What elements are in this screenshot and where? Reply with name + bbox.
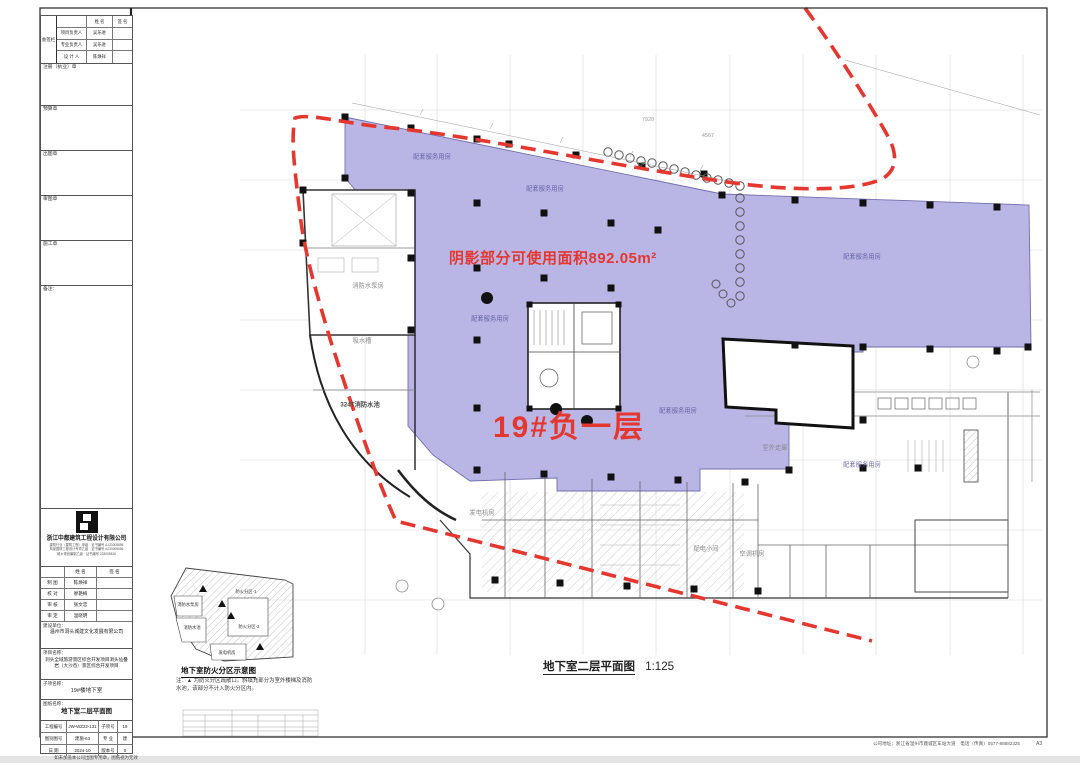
subitem-section: 子项名称： 19#楼地下室 [41,680,132,700]
staff-table: 姓 名 签 名 制 图 陈焕祥 校 对 廖艳梅 审 核 张文忠 审 定 温晓明 [41,567,132,622]
keyplan-caption: 地下室防火分区示意图 [181,665,256,678]
sign-column: 会签栏 姓 名 签 名 项目负责人 吴乐进 专业负责人 吴乐进 设 计 人 陈焕… [41,16,132,64]
company-section: 浙江中都建筑工程设计有限公司 建筑行业（建筑工程）甲级 证书编号 A133005… [41,509,132,567]
client-section: 建设单位： 温州市洞头城建文化发展有限公司 [41,622,132,649]
plan-drawing [0,0,1080,763]
drawing-label: 配套服务用房 [659,406,697,415]
area-table [183,710,318,736]
client-name: 温州市洞头城建文化发展有限公司 [43,630,130,636]
table-cell [57,16,87,27]
table-header: 姓 名 [87,16,113,27]
drawing-label: 4567 [702,133,714,139]
bottom-edge-band [0,756,1080,763]
keyplan-note: 注：▲ 为防火分区疏散口。斜填充部分为室外楼梯及消防水池，该部分不计入防火分区内… [176,678,316,694]
plan-caption-title: 地下室二层平面图 [543,661,635,675]
role-label: 项目负责人 [57,28,87,39]
person-name: 吴乐进 [87,40,113,51]
drawing-label: 发电机房 [469,508,494,517]
issue-seal-box: 出图章 [41,151,132,196]
drawing-label: 配套服务用房 [843,460,881,469]
drawing-label: 配电小间 [693,544,718,553]
drawing-label: 配套服务用房 [843,252,881,261]
drawing-label: 发电机房 [218,650,235,656]
signature-cell [113,40,132,51]
subitem-name: 19#楼地下室 [43,688,130,695]
budget-seal-box: 预算章 [41,106,132,151]
info-table: 工程编号 JW-WZ22-131 子项号 19 图别图号 建施-63 专 业 建… [41,721,132,756]
drawing-label: 消防水泵房 [352,281,383,290]
person-name: 吴乐进 [87,28,113,39]
footer-sheet-size: A3 [1036,741,1042,747]
signature-cell [113,51,132,63]
drawing-label: 配套服务用房 [413,152,451,161]
drawing-sheet: { "colors": { "red": "#e4372f", "purple"… [0,0,1080,763]
role-label: 设 计 人 [57,51,87,63]
plan-caption: 地下室二层平面图 1:125 [543,658,674,674]
drawing-label: 配套服务用房 [471,314,509,323]
drawing-label: 配套服务用房 [526,184,564,193]
review-seal-box: 审图章 [41,196,132,241]
construction-seal-box: 施工章 [41,241,132,286]
remarks-box: 备注： [41,286,132,509]
drawing-label: 空调机房 [739,549,764,558]
company-logo [76,511,98,533]
floor-label: 19#负一层 [493,402,645,446]
drawing-label: 防火分区-2 [238,624,259,630]
company-certs: 建筑行业（建筑工程）甲级 证书编号 A133005656 风景园林工程设计专项乙… [43,543,129,556]
sign-column-label: 会签栏 [41,16,57,63]
drawing-label: 吸水槽 [353,336,372,345]
project-section: 项目名称： 洞头全域旅游景区综合开发项目洞头仙叠岩（大沙岙）景区综合开发项目 [41,649,132,680]
drawing-label: 防火分区-1 [235,589,256,595]
plan-caption-scale: 1:125 [645,661,674,673]
pump-room [303,190,415,335]
keyplan [171,568,293,661]
shaded-area-note: 阴影部分可使用面积892.05m² [449,247,657,268]
drawing-label: 324T消防水池 [340,400,380,409]
seal-box: 注册（执业）章 [41,64,132,106]
company-name: 浙江中都建筑工程设计有限公司 [45,535,129,543]
signature-cell [113,28,132,39]
title-block: 会签栏 姓 名 签 名 项目负责人 吴乐进 专业负责人 吴乐进 设 计 人 陈焕… [40,15,133,754]
drawing-label: 消防水池 [183,625,200,631]
responsible-table: 姓 名 签 名 项目负责人 吴乐进 专业负责人 吴乐进 设 计 人 陈焕祥 [57,16,132,63]
drawing-label: 室外走廊 [762,443,787,452]
drawing-label: 消防水泵房 [177,602,198,608]
stamp-note: 如未加盖本公司出图专用章，图纸视为无效 [42,755,150,761]
sheet-name: 地下室二层平面图 [43,708,130,716]
sheet-name-section: 图纸名称： 地下室二层平面图 [41,700,132,721]
footer-address: 公司地址：浙江省温州市鹿城区车站大道 电话（传真）0577-88882325 [560,741,1020,747]
project-name: 洞头全域旅游景区综合开发项目洞头仙叠岩（大沙岙）景区综合开发项目 [43,657,130,669]
person-name: 陈焕祥 [87,51,113,63]
table-header: 签 名 [113,16,132,27]
drawing-label: 7920 [642,117,654,123]
stair-core [528,303,620,409]
shaded-usable-area [345,117,1031,491]
role-label: 专业负责人 [57,40,87,51]
